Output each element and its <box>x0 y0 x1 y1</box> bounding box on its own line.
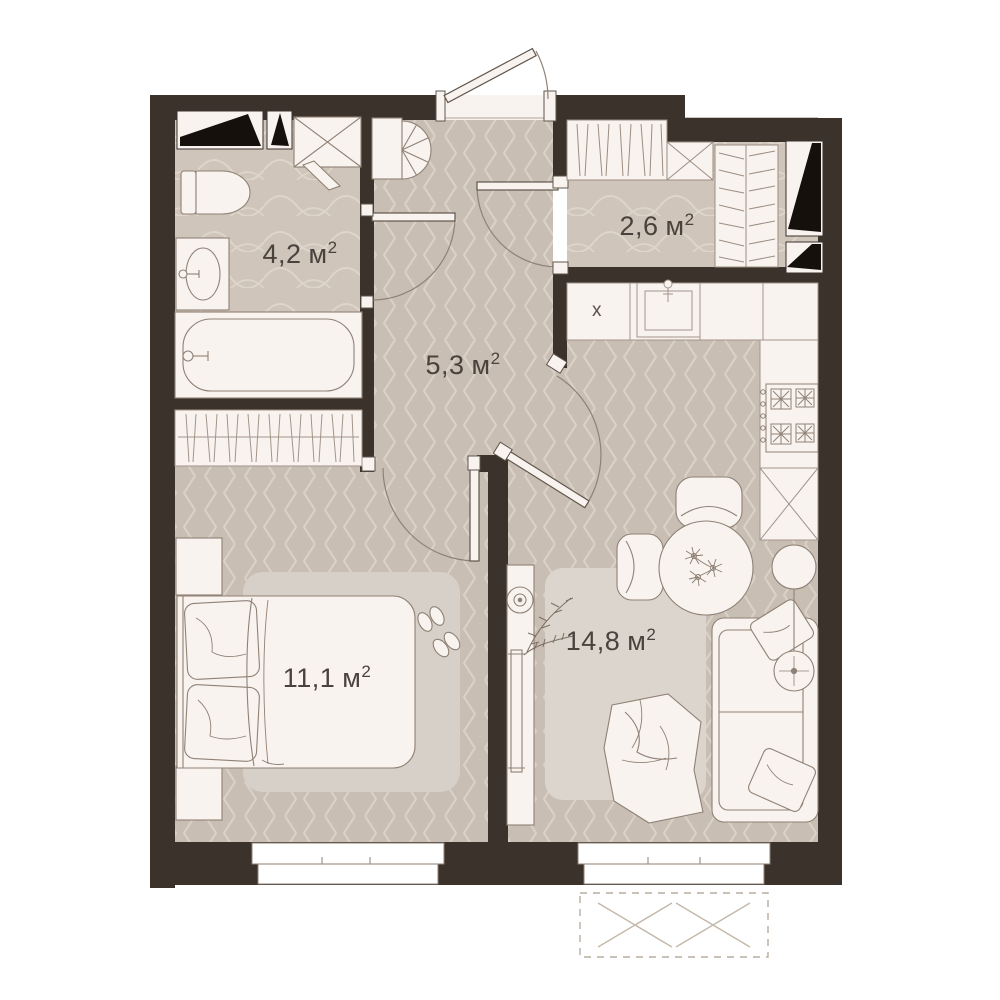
entrance-door <box>436 49 556 121</box>
wall-bathroom-bedroom <box>175 398 372 411</box>
kitchen-sink <box>637 280 700 337</box>
bed-pillow <box>184 600 260 680</box>
living-window <box>578 843 770 884</box>
tv <box>511 650 522 772</box>
storage-box <box>667 142 713 180</box>
hallway-area-label: 5,3м2 <box>425 349 500 381</box>
bathroom-sink <box>176 238 229 310</box>
stove <box>761 384 818 452</box>
wardrobe-door-leaf <box>477 182 558 190</box>
wall-top-right-step <box>665 118 842 142</box>
wall-wardrobe-kitchen <box>553 267 818 283</box>
kitchen-sink-marker: х <box>592 300 602 322</box>
bedroom-area-label: 11,1м2 <box>283 662 372 694</box>
floor-plan: 4,2м2 2,6м2 5,3м2 11,1м2 14,8м2 х <box>0 0 1000 1000</box>
living-kitchen-area-label: 14,8м2 <box>566 625 657 657</box>
tall-unit-fridge <box>760 468 818 540</box>
wardrobe-area-label: 2,6м2 <box>619 210 694 242</box>
shelving-unit <box>715 145 778 267</box>
toilet <box>181 171 250 214</box>
bathroom-area-label: 4,2м2 <box>262 238 337 270</box>
bathroom-door-leaf <box>372 213 455 221</box>
nightstand <box>176 766 222 820</box>
wall-bedroom-living <box>488 455 508 842</box>
bedroom-wardrobe <box>175 410 362 466</box>
wall-wardrobe-upper <box>553 117 567 185</box>
bedroom-window <box>252 843 444 884</box>
bedroom-door-leaf <box>470 468 479 561</box>
balcony-outline <box>580 893 768 957</box>
floor-plan-drawing <box>0 0 1000 1000</box>
tv-console <box>507 565 534 825</box>
bathtub <box>175 312 362 398</box>
dining-chair <box>617 534 663 600</box>
dining-chair <box>676 477 742 528</box>
nightstand <box>176 538 222 595</box>
throw-blanket <box>604 694 703 823</box>
entrance-door-leaf <box>444 49 536 103</box>
dining-table <box>659 521 753 615</box>
clothes-rail <box>567 120 667 180</box>
wall-left <box>150 95 175 888</box>
sofa <box>712 598 818 822</box>
